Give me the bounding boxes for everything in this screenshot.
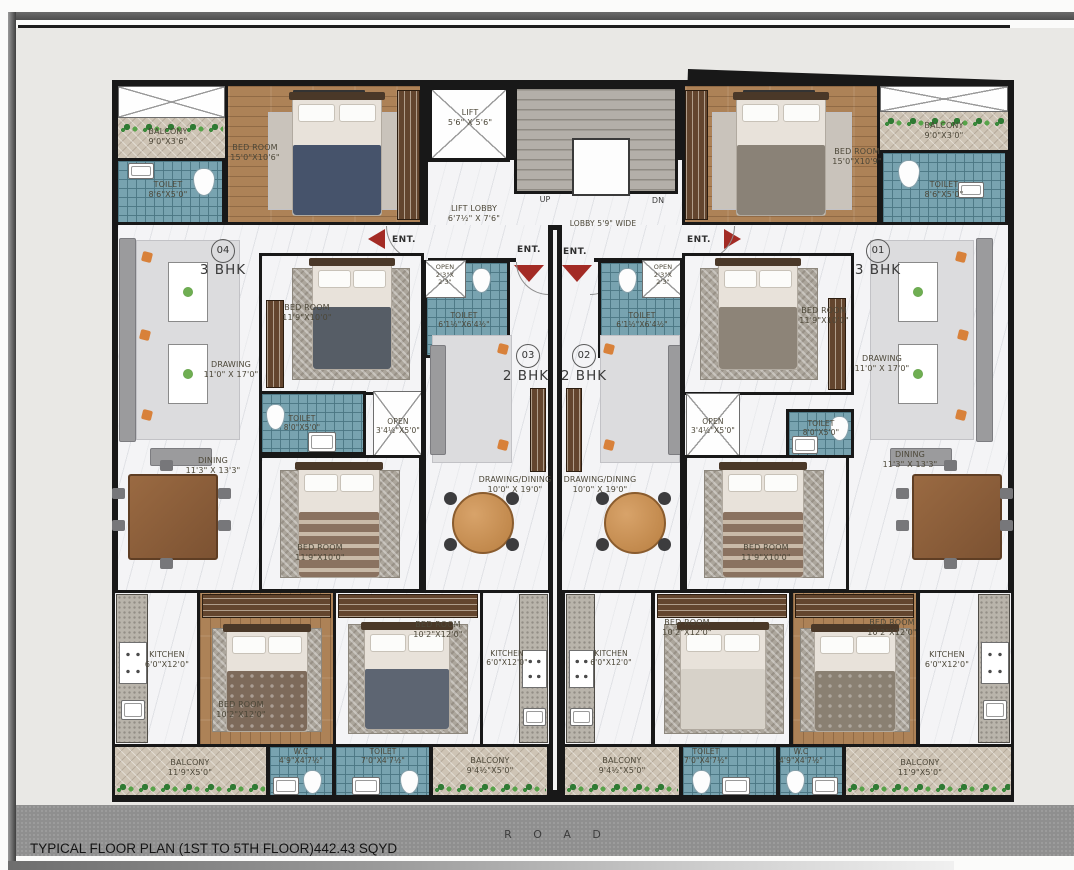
chair-icon	[112, 520, 125, 531]
unit-02-type: 2 BHK	[552, 368, 616, 384]
bed-icon	[364, 628, 450, 730]
unit-02-number: 02	[572, 344, 596, 368]
chair-icon	[944, 460, 957, 471]
wardrobe-icon	[530, 388, 546, 472]
bed5-l-label: BED ROOM10'2"X12'0"	[398, 620, 478, 639]
wall-center-gap	[553, 230, 557, 790]
sofa-icon	[430, 345, 446, 455]
kitchen-03-label: KITCHEN6'0"X12'0"	[478, 650, 536, 667]
bed-tl-label: BED ROOM15'0"X10'6"	[215, 143, 295, 162]
dining-l-label: DINING11'3" X 13'3"	[180, 456, 246, 475]
chair-icon	[506, 538, 519, 551]
bed-icon	[292, 98, 382, 216]
window-frame-top	[8, 12, 1074, 20]
unit-01-number: 01	[866, 239, 890, 263]
washbasin-icon	[812, 777, 838, 795]
bed4-r-label: BED ROOM10'2"X12'0"	[852, 618, 932, 637]
plants	[434, 780, 546, 795]
floor-plan-page: BALCONY9'0"X3'6" TOILET8'6"X5'0" BED ROO…	[0, 0, 1074, 870]
plants	[116, 780, 265, 795]
toilet2-l-label: TOILET8'0"X5'0"	[272, 415, 332, 432]
bed3-r-label: BED ROOM11'9"X10'0"	[726, 543, 806, 562]
open-to-sky-top-right	[880, 86, 1008, 112]
ent-label-unit03: ENT.	[517, 245, 541, 255]
toilet-br-label: TOILET7'0"X4'7½"	[676, 748, 736, 765]
kitchen-sink-icon	[523, 708, 546, 726]
chair-icon	[160, 558, 173, 569]
toilet-tr-label: TOILET8'6"X5'0"	[894, 180, 994, 199]
chair-icon	[112, 488, 125, 499]
chair-icon	[658, 492, 671, 505]
unit-04-number: 04	[211, 239, 235, 263]
chair-icon	[218, 520, 231, 531]
dining-table-icon	[912, 474, 1002, 560]
balcony-br-label: BALCONY11'9"X5'0"	[870, 758, 970, 777]
bottom-edge-artifact	[8, 861, 954, 870]
wc-r-label: W.C4'9"X4'7½"	[772, 748, 830, 765]
toilet03-label: TOILET6'1½"X6'4½"	[424, 312, 504, 329]
open-to-sky-top-left	[118, 86, 225, 118]
bed-tr-label: BED ROOM15'0"X10'9"	[817, 147, 897, 166]
bed3-l-label: BED ROOM11'9"X10'0"	[280, 543, 360, 562]
balcony-bl-label: BALCONY11'9"X5'0"	[140, 758, 240, 777]
sofa-icon	[976, 238, 993, 442]
balcony-bcr-label: BALCONY9'4½"X5'0"	[564, 756, 680, 775]
washbasin-icon	[128, 163, 154, 179]
stairs-dn-label: DN	[643, 196, 673, 205]
chair-icon	[944, 558, 957, 569]
wall-unit02-01	[680, 260, 685, 592]
open-l-label: OPEN3'4½"X5'0"	[374, 418, 422, 435]
ent-label-unit01: ENT.	[687, 235, 711, 245]
bed4-l-label: BED ROOM10'2"X12'0"	[200, 700, 282, 719]
wc-l-label: W.C4'9"X4'7½"	[272, 748, 330, 765]
bed-icon	[736, 98, 826, 216]
bed5-r-label: BED ROOM10'2"X12'0"	[648, 618, 726, 637]
unit-04-type: 3 BHK	[190, 262, 256, 278]
stair-landing	[572, 138, 630, 196]
toilet-bl-label: TOILET7'0"X4'7½"	[353, 748, 413, 765]
chair-icon	[658, 538, 671, 551]
chair-icon	[1000, 488, 1013, 499]
chair-icon	[1000, 520, 1013, 531]
unit-01-type: 3 BHK	[845, 262, 911, 278]
entry-arrow-unit02-icon	[562, 265, 592, 282]
wardrobe-icon	[685, 90, 708, 220]
toilet2-r-label: TOILET8'0"X5'0"	[790, 420, 852, 437]
chair-icon	[218, 488, 231, 499]
window-frame-left	[8, 12, 16, 865]
ent-label-unit02: ENT.	[563, 247, 587, 257]
coffee-table-icon	[898, 344, 938, 404]
kitchen-l-label: KITCHEN6'0"X12'0"	[134, 650, 200, 669]
kitchen-r-label: KITCHEN6'0"X12'0"	[914, 650, 980, 669]
balcony-bcl-label: BALCONY9'4½"X5'0"	[432, 756, 548, 775]
washbasin-icon	[722, 777, 750, 795]
toilet-tl-label: TOILET8'6"X5'0"	[118, 180, 218, 199]
road-label: R O A D	[477, 828, 637, 841]
lift-lobby-label: LIFT LOBBY6'7½" X 7'6"	[434, 204, 514, 223]
dd-02-label: DRAWING/DINING10'0" X 19'0"	[545, 475, 655, 494]
drawing-l-label: DRAWING11'0" X 17'0"	[196, 360, 266, 379]
wardrobe-icon	[202, 594, 331, 618]
kitchen-02-label: KITCHEN6'0"X12'0"	[582, 650, 640, 667]
plants	[566, 780, 678, 795]
balcony-tl-label: BALCONY9'0"X3'6"	[118, 127, 218, 146]
dining-table-icon	[128, 474, 218, 560]
open03-label: OPEN2'3"X2'3"	[424, 264, 466, 287]
wardrobe-icon	[338, 594, 478, 618]
chair-icon	[160, 460, 173, 471]
kitchen-sink-icon	[121, 700, 145, 720]
plants	[847, 780, 1010, 795]
bed2-r-label: BED ROOM11'9"X10'0"	[790, 306, 858, 325]
open02-label: OPEN2'3"X2'3"	[642, 264, 684, 287]
wardrobe-icon	[566, 388, 582, 472]
plan-caption: TYPICAL FLOOR PLAN (1ST TO 5TH FLOOR)442…	[30, 841, 397, 856]
bed-icon	[718, 264, 798, 370]
chair-icon	[896, 488, 909, 499]
round-dining-table-icon	[604, 492, 666, 554]
chair-icon	[444, 492, 457, 505]
balcony-tr-label: BALCONY9'0"X3'0"	[894, 121, 994, 140]
chair-icon	[444, 538, 457, 551]
open-r-label: OPEN3'4½"X5'0"	[688, 418, 738, 435]
kitchen-sink-icon	[570, 708, 593, 726]
chair-icon	[896, 520, 909, 531]
bed2-l-label: BED ROOM11'9"X10'0"	[264, 303, 350, 322]
wardrobe-icon	[657, 594, 787, 618]
unit-03-number: 03	[516, 344, 540, 368]
lobby-width-label: LOBBY 5'9" WIDE	[543, 220, 663, 229]
washbasin-icon	[308, 432, 336, 452]
dining-r-label: DINING11'3" X 13'3"	[877, 450, 943, 469]
lift-label: LIFT5'6" X 5'6"	[430, 108, 510, 127]
chair-icon	[596, 538, 609, 551]
ent-label-unit04: ENT.	[392, 235, 416, 245]
wardrobe-icon	[795, 594, 914, 618]
bed-icon	[814, 630, 896, 732]
stairs-up-label: UP	[530, 195, 560, 204]
unit-03-type: 2 BHK	[494, 368, 558, 384]
toilet02-label: TOILET6'1½"X6'4½"	[602, 312, 682, 329]
sofa-icon	[119, 238, 136, 442]
kitchen-sink-icon	[983, 700, 1007, 720]
drawing-r-label: DRAWING11'0" X 17'0"	[847, 354, 917, 373]
washbasin-icon	[273, 777, 299, 795]
round-dining-table-icon	[452, 492, 514, 554]
stove-icon	[981, 642, 1009, 684]
entry-arrow-unit04-icon	[368, 229, 385, 249]
washbasin-icon	[792, 436, 818, 454]
washbasin-icon	[352, 777, 380, 795]
wardrobe-icon	[397, 90, 420, 220]
bed-icon	[680, 628, 766, 730]
